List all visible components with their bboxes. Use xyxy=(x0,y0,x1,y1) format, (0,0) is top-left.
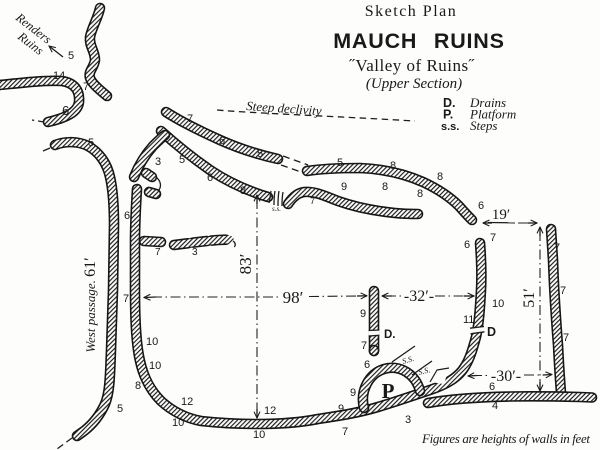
svg-text:3: 3 xyxy=(192,247,198,258)
svg-text:5: 5 xyxy=(88,137,94,149)
svg-text:8: 8 xyxy=(382,181,388,193)
svg-text:(Upper Section): (Upper Section) xyxy=(366,76,462,92)
svg-text:7: 7 xyxy=(187,113,193,125)
svg-text:10: 10 xyxy=(146,336,158,348)
svg-text:P: P xyxy=(382,379,395,403)
svg-text:8: 8 xyxy=(417,188,423,200)
svg-text:6: 6 xyxy=(489,381,495,393)
svg-text:7: 7 xyxy=(342,426,348,438)
svg-text:51′: 51′ xyxy=(521,288,538,308)
svg-text:9: 9 xyxy=(341,181,347,193)
svg-text:MAUCH RUINS: MAUCH RUINS xyxy=(333,29,505,53)
svg-text:s.s.: s.s. xyxy=(272,205,281,213)
svg-text:West passage. 61′: West passage. 61′ xyxy=(82,257,99,352)
svg-text:8: 8 xyxy=(135,380,141,392)
svg-text:5: 5 xyxy=(68,50,74,62)
svg-text:5: 5 xyxy=(179,154,185,166)
svg-text:3: 3 xyxy=(155,156,161,168)
svg-text:7: 7 xyxy=(361,340,367,352)
svg-text:9: 9 xyxy=(360,308,366,320)
svg-text:7: 7 xyxy=(123,293,129,305)
svg-text:7: 7 xyxy=(563,332,569,344)
svg-text:10: 10 xyxy=(492,298,504,310)
svg-text:10: 10 xyxy=(172,417,184,429)
svg-text:7: 7 xyxy=(490,232,496,244)
svg-text:8: 8 xyxy=(390,160,396,172)
svg-text:6: 6 xyxy=(478,200,484,212)
svg-text:14: 14 xyxy=(53,70,65,82)
svg-text:83′: 83′ xyxy=(236,254,255,275)
svg-text:12: 12 xyxy=(264,405,276,417)
svg-text:6: 6 xyxy=(207,172,213,184)
svg-text:7: 7 xyxy=(83,81,89,93)
svg-text:7: 7 xyxy=(560,285,566,297)
svg-text:8: 8 xyxy=(240,185,246,197)
svg-text:s.s.: s.s. xyxy=(441,121,459,133)
svg-text:˝Valley of Ruins˝: ˝Valley of Ruins˝ xyxy=(348,56,475,75)
svg-text:Steps: Steps xyxy=(470,118,497,133)
svg-text:10: 10 xyxy=(149,360,161,372)
svg-text:-32′-: -32′- xyxy=(404,288,434,305)
svg-text:6: 6 xyxy=(464,239,470,251)
svg-text:Sketch Plan: Sketch Plan xyxy=(365,3,458,20)
svg-text:6: 6 xyxy=(124,210,130,222)
svg-text:9: 9 xyxy=(338,403,344,415)
svg-text:5: 5 xyxy=(117,403,123,415)
svg-text:7: 7 xyxy=(310,196,315,206)
svg-text:D.: D. xyxy=(384,329,396,341)
svg-text:D: D xyxy=(487,325,496,339)
svg-text:10: 10 xyxy=(253,429,265,441)
svg-text:-30′-: -30′- xyxy=(491,368,521,385)
svg-text:4: 4 xyxy=(492,400,498,412)
svg-text:9: 9 xyxy=(350,387,356,399)
svg-text:12: 12 xyxy=(181,396,193,408)
svg-text:6: 6 xyxy=(62,103,69,118)
svg-text:98′: 98′ xyxy=(283,288,304,307)
svg-text:5: 5 xyxy=(257,148,263,160)
svg-text:Figures are heights of walls i: Figures are heights of walls in feet xyxy=(421,431,590,446)
svg-text:3: 3 xyxy=(405,414,411,426)
svg-text:19′: 19′ xyxy=(492,207,510,223)
svg-text:6: 6 xyxy=(219,135,225,147)
svg-text:7: 7 xyxy=(155,247,161,258)
svg-text:P.: P. xyxy=(443,108,453,122)
svg-text:7: 7 xyxy=(554,242,560,254)
svg-text:6: 6 xyxy=(364,359,370,371)
svg-text:5: 5 xyxy=(337,157,343,169)
svg-text:8: 8 xyxy=(437,171,443,183)
svg-text:11: 11 xyxy=(463,314,474,326)
